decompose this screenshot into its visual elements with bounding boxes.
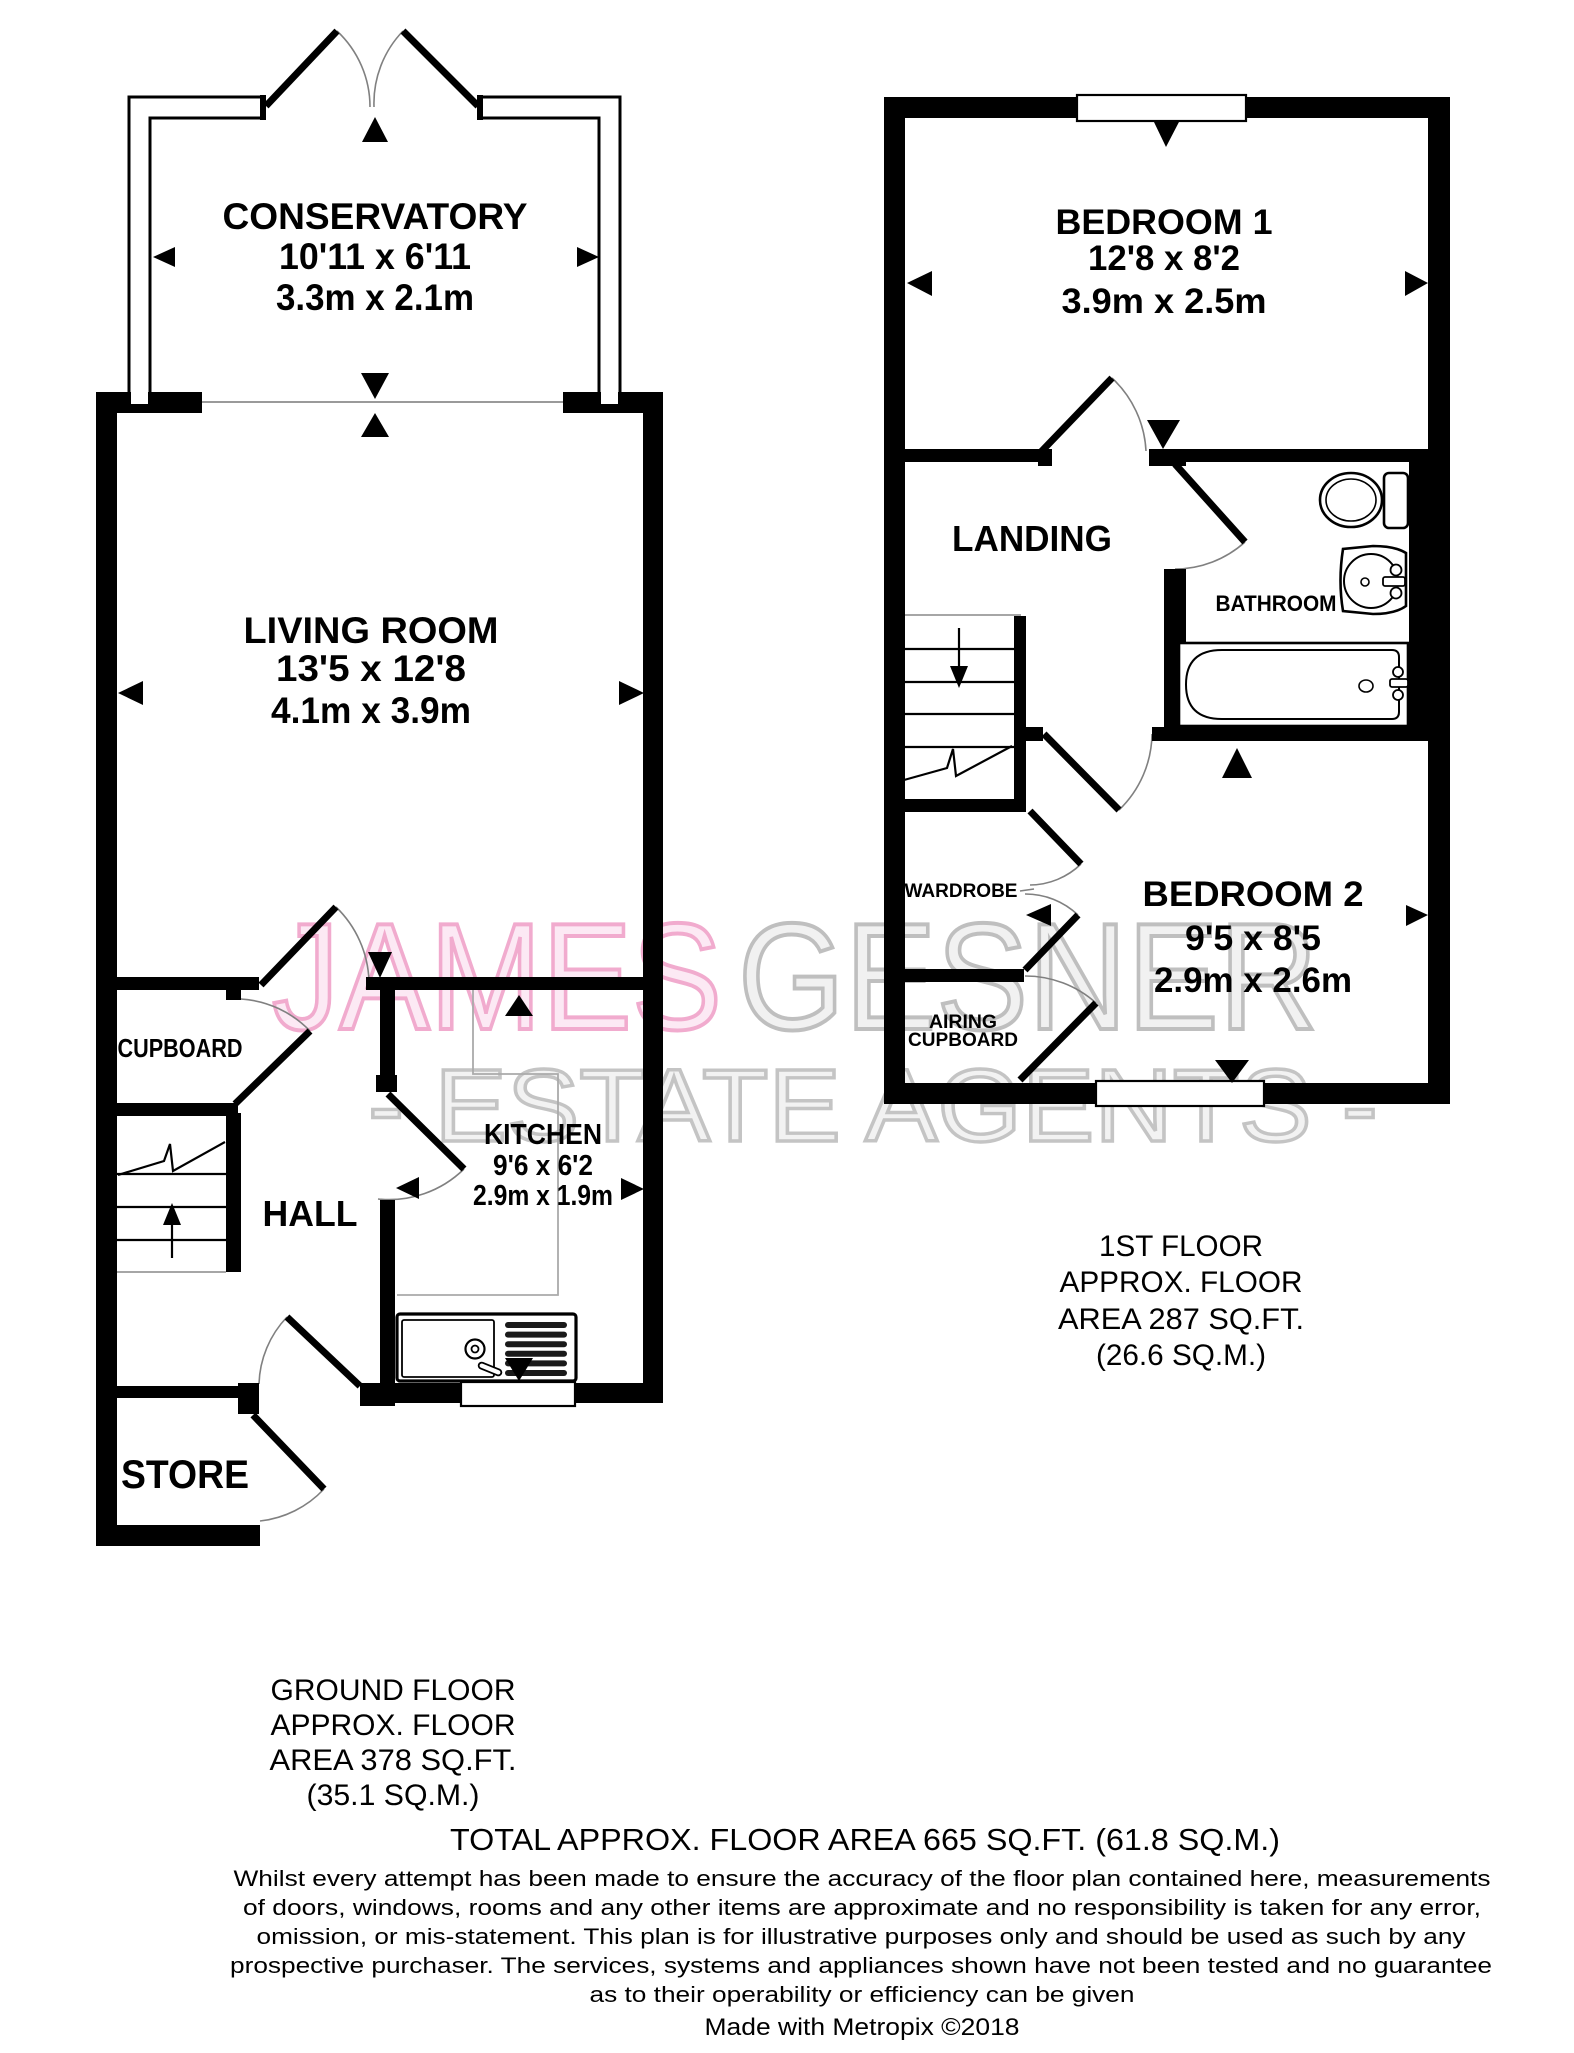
svg-text:Made with Metropix ©2018: Made with Metropix ©2018 [705,2014,1020,2041]
svg-text:3.3m x 2.1m: 3.3m x 2.1m [276,277,474,318]
svg-text:Whilst every attempt has been: Whilst every attempt has been made to en… [234,1866,1491,1891]
svg-text:4.1m x 3.9m: 4.1m x 3.9m [271,690,471,731]
svg-text:9'5 x 8'5: 9'5 x 8'5 [1185,919,1321,958]
svg-text:10'11 x 6'11: 10'11 x 6'11 [279,236,471,277]
svg-text:CONSERVATORY: CONSERVATORY [223,196,528,237]
svg-text:TOTAL APPROX. FLOOR AREA 665 S: TOTAL APPROX. FLOOR AREA 665 SQ.FT. (61.… [450,1822,1280,1857]
svg-text:WARDROBE: WARDROBE [905,881,1018,902]
svg-text:2.9m x 1.9m: 2.9m x 1.9m [473,1180,613,1212]
svg-text:APPROX. FLOOR: APPROX. FLOOR [1060,1266,1303,1299]
svg-text:AREA 378 SQ.FT.: AREA 378 SQ.FT. [270,1744,517,1777]
svg-text:omission, or mis-statement. Th: omission, or mis-statement. This plan is… [257,1924,1467,1949]
svg-text:(35.1 SQ.M.): (35.1 SQ.M.) [307,1779,480,1812]
svg-text:CUPBOARD: CUPBOARD [908,1030,1018,1051]
svg-text:1ST FLOOR: 1ST FLOOR [1099,1230,1263,1263]
svg-text:(26.6 SQ.M.): (26.6 SQ.M.) [1096,1339,1266,1372]
svg-text:CUPBOARD: CUPBOARD [118,1033,243,1063]
svg-text:2.9m x 2.6m: 2.9m x 2.6m [1154,961,1352,1000]
svg-text:HALL: HALL [263,1193,358,1234]
svg-text:LIVING ROOM: LIVING ROOM [244,610,499,651]
svg-text:APPROX. FLOOR: APPROX. FLOOR [271,1709,516,1742]
svg-text:9'6 x 6'2: 9'6 x 6'2 [493,1150,593,1182]
svg-text:BEDROOM 1: BEDROOM 1 [1056,203,1273,242]
svg-text:of doors, windows, rooms and a: of doors, windows, rooms and any other i… [243,1895,1481,1920]
svg-text:13'5 x 12'8: 13'5 x 12'8 [276,648,466,689]
svg-text:BATHROOM: BATHROOM [1216,591,1337,616]
svg-text:as to their operability or eff: as to their operability or efficiency ca… [590,1982,1135,2007]
svg-text:BEDROOM 2: BEDROOM 2 [1143,875,1364,914]
svg-text:12'8 x 8'2: 12'8 x 8'2 [1088,239,1240,278]
svg-text:KITCHEN: KITCHEN [484,1119,602,1151]
svg-text:3.9m x 2.5m: 3.9m x 2.5m [1062,282,1267,321]
svg-text:LANDING: LANDING [952,518,1112,559]
svg-text:AREA 287 SQ.FT.: AREA 287 SQ.FT. [1058,1303,1304,1336]
svg-text:prospective purchaser. The ser: prospective purchaser. The services, sys… [230,1953,1492,1978]
svg-text:GROUND FLOOR: GROUND FLOOR [271,1674,516,1707]
svg-text:STORE: STORE [121,1453,249,1497]
